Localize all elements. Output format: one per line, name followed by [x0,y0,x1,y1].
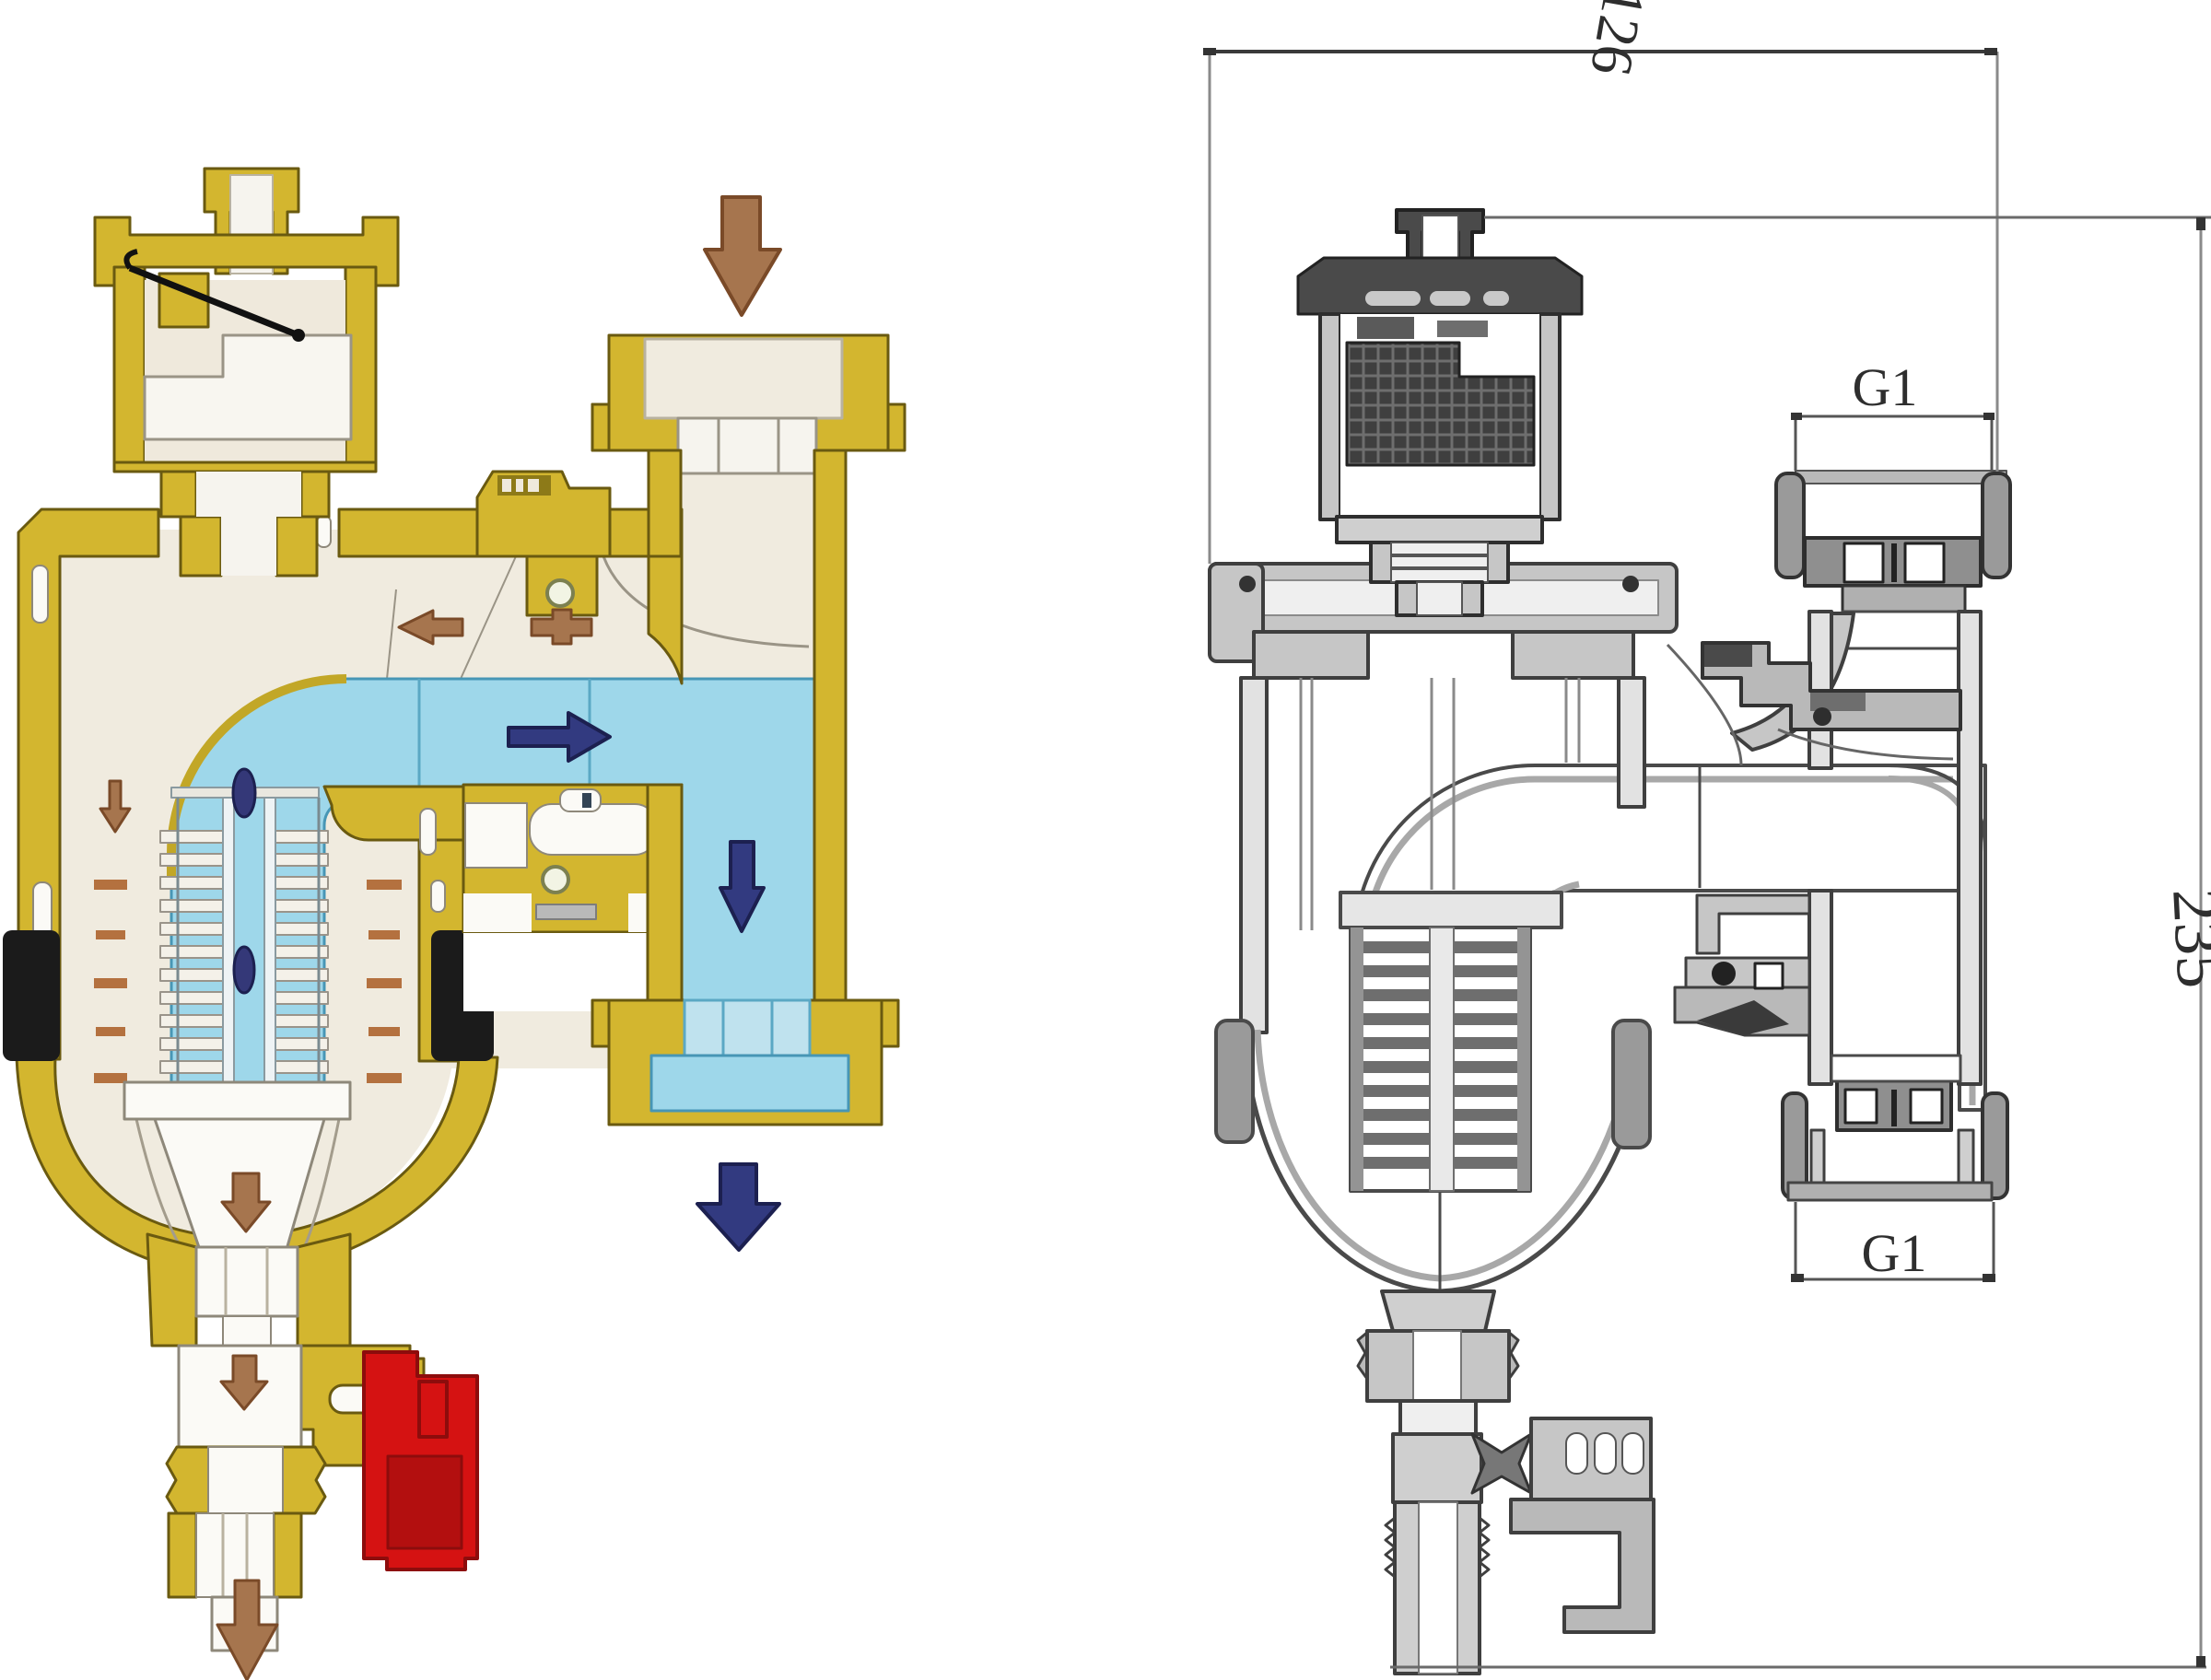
svg-text:235: 235 [2158,887,2211,990]
svg-text:126: 126 [1578,0,1658,80]
svg-text:G1: G1 [1862,1223,1927,1283]
svg-text:G1: G1 [1853,357,1918,417]
